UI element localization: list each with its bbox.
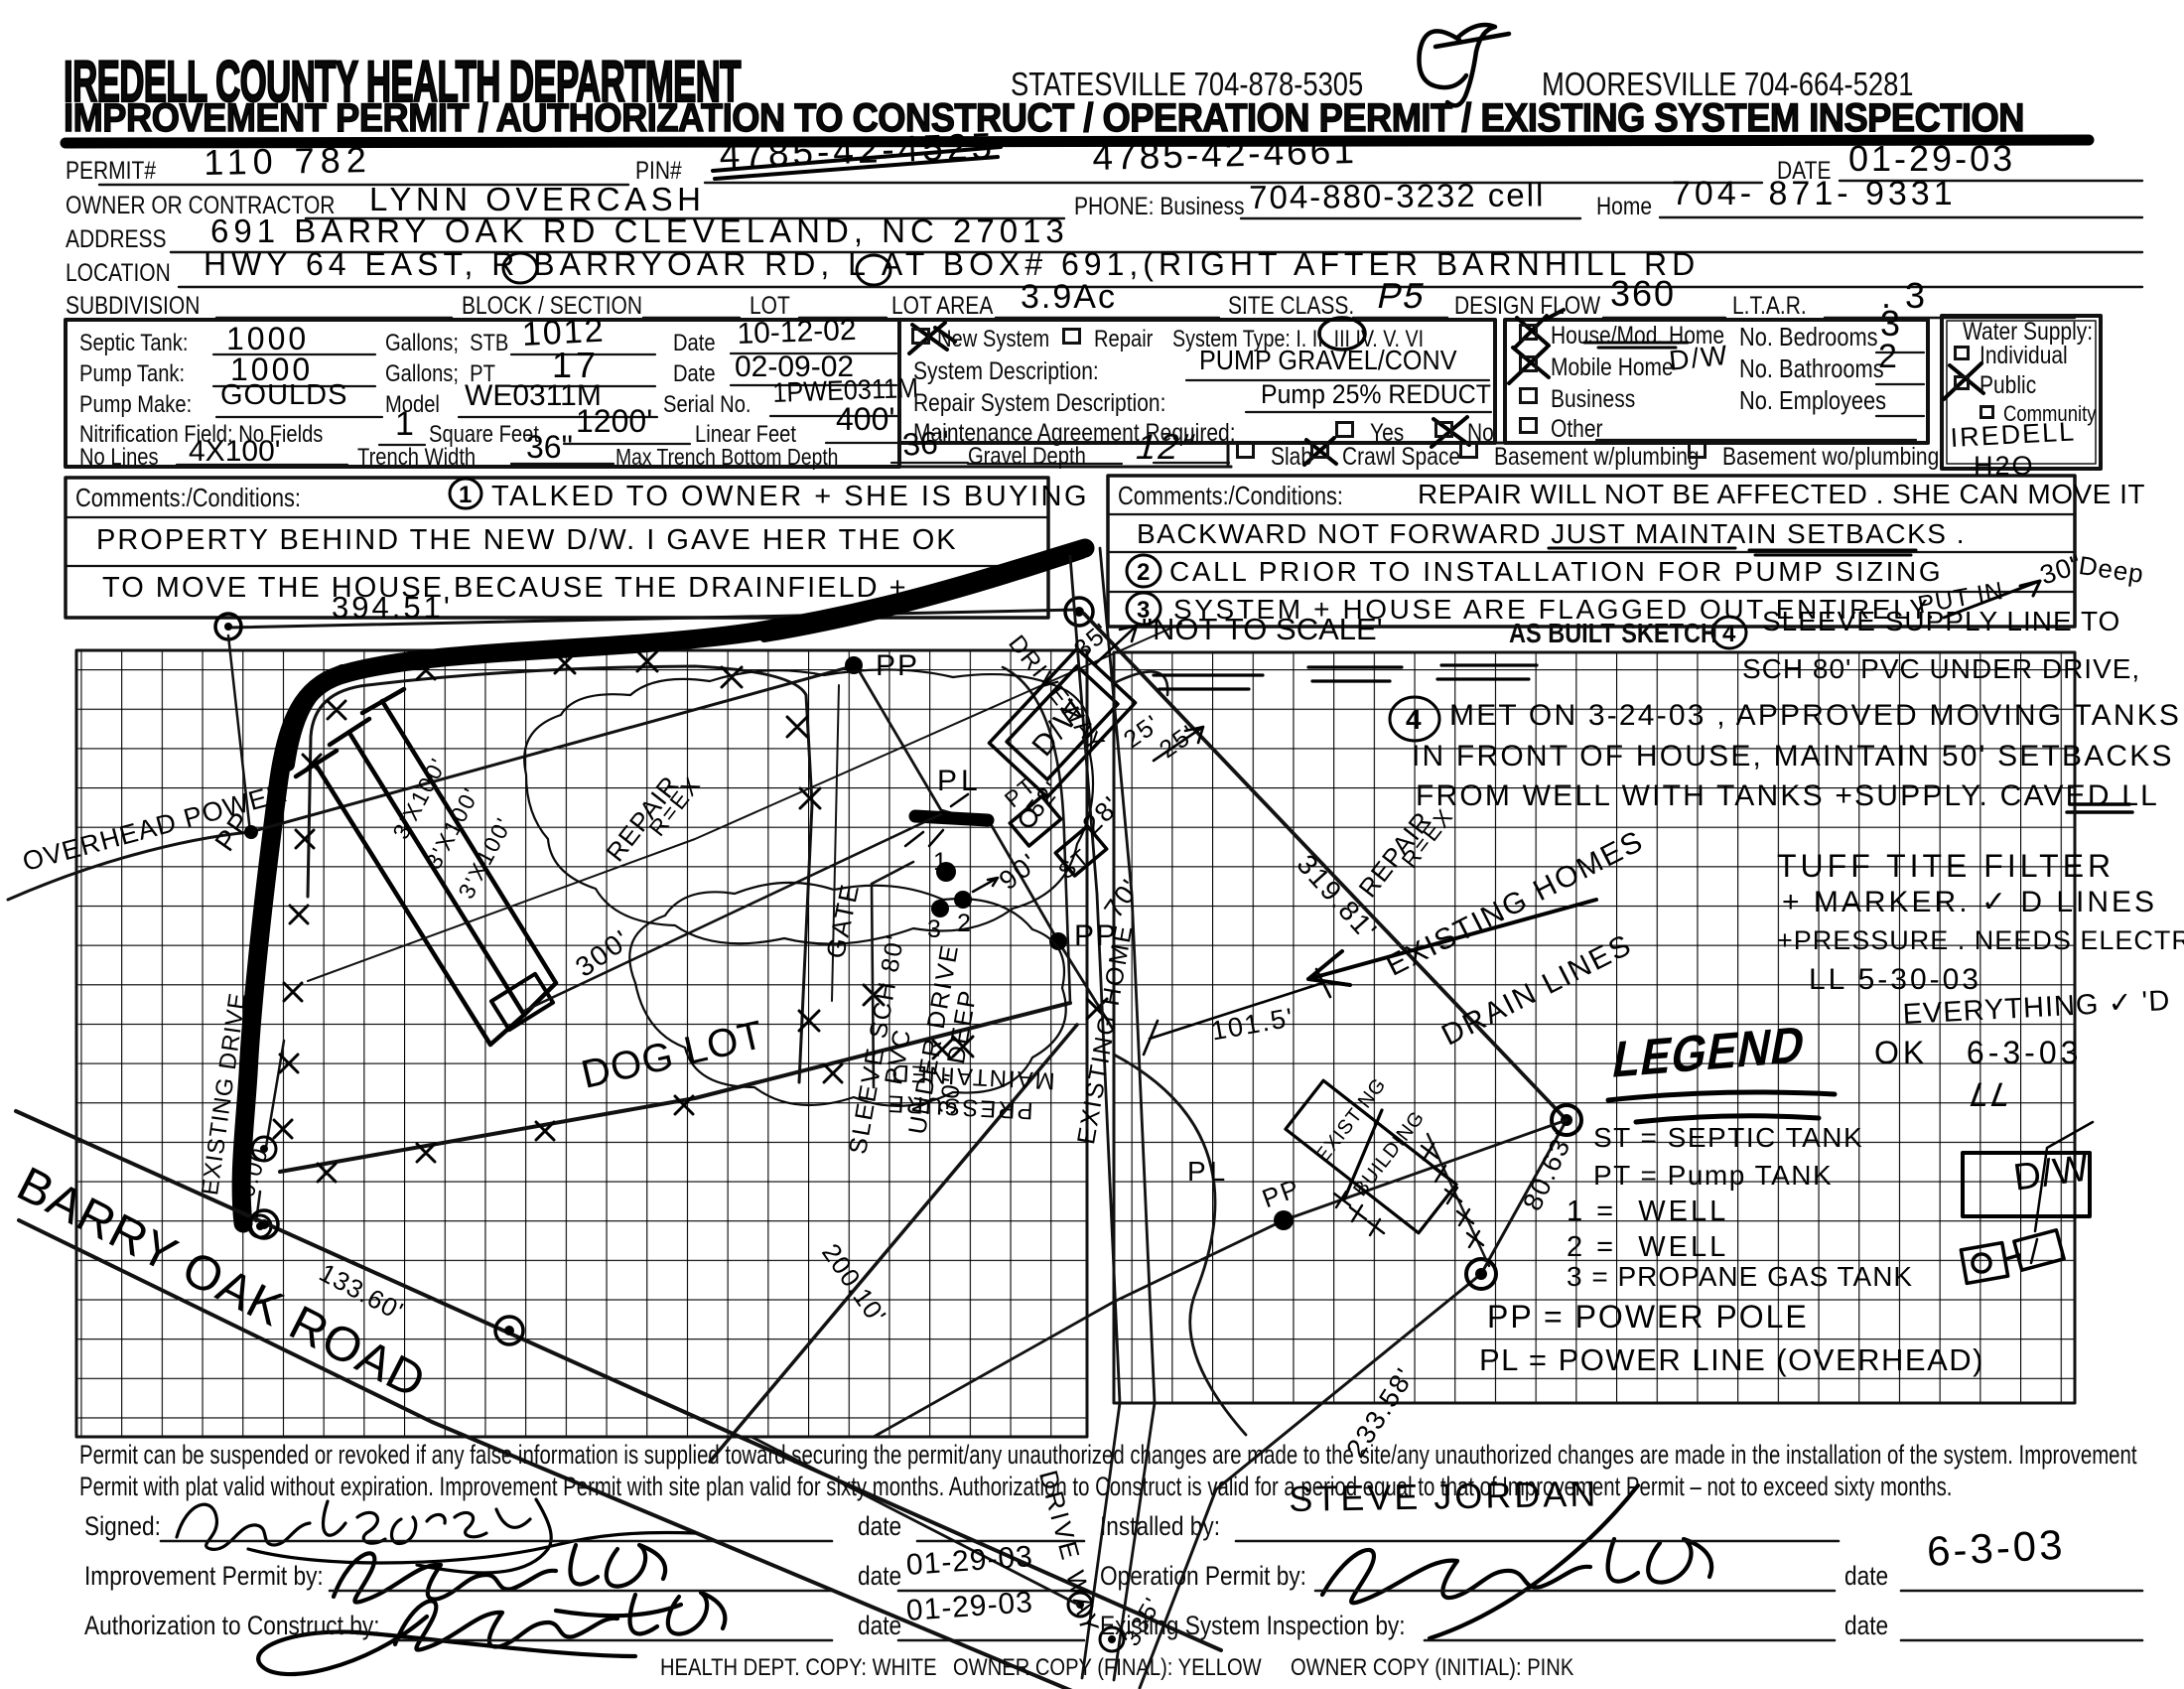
svg-text:4: 4	[1406, 704, 1422, 735]
svg-text:1: 1	[459, 482, 472, 508]
svg-text:4: 4	[1722, 621, 1736, 647]
svg-text:2: 2	[1137, 559, 1150, 586]
